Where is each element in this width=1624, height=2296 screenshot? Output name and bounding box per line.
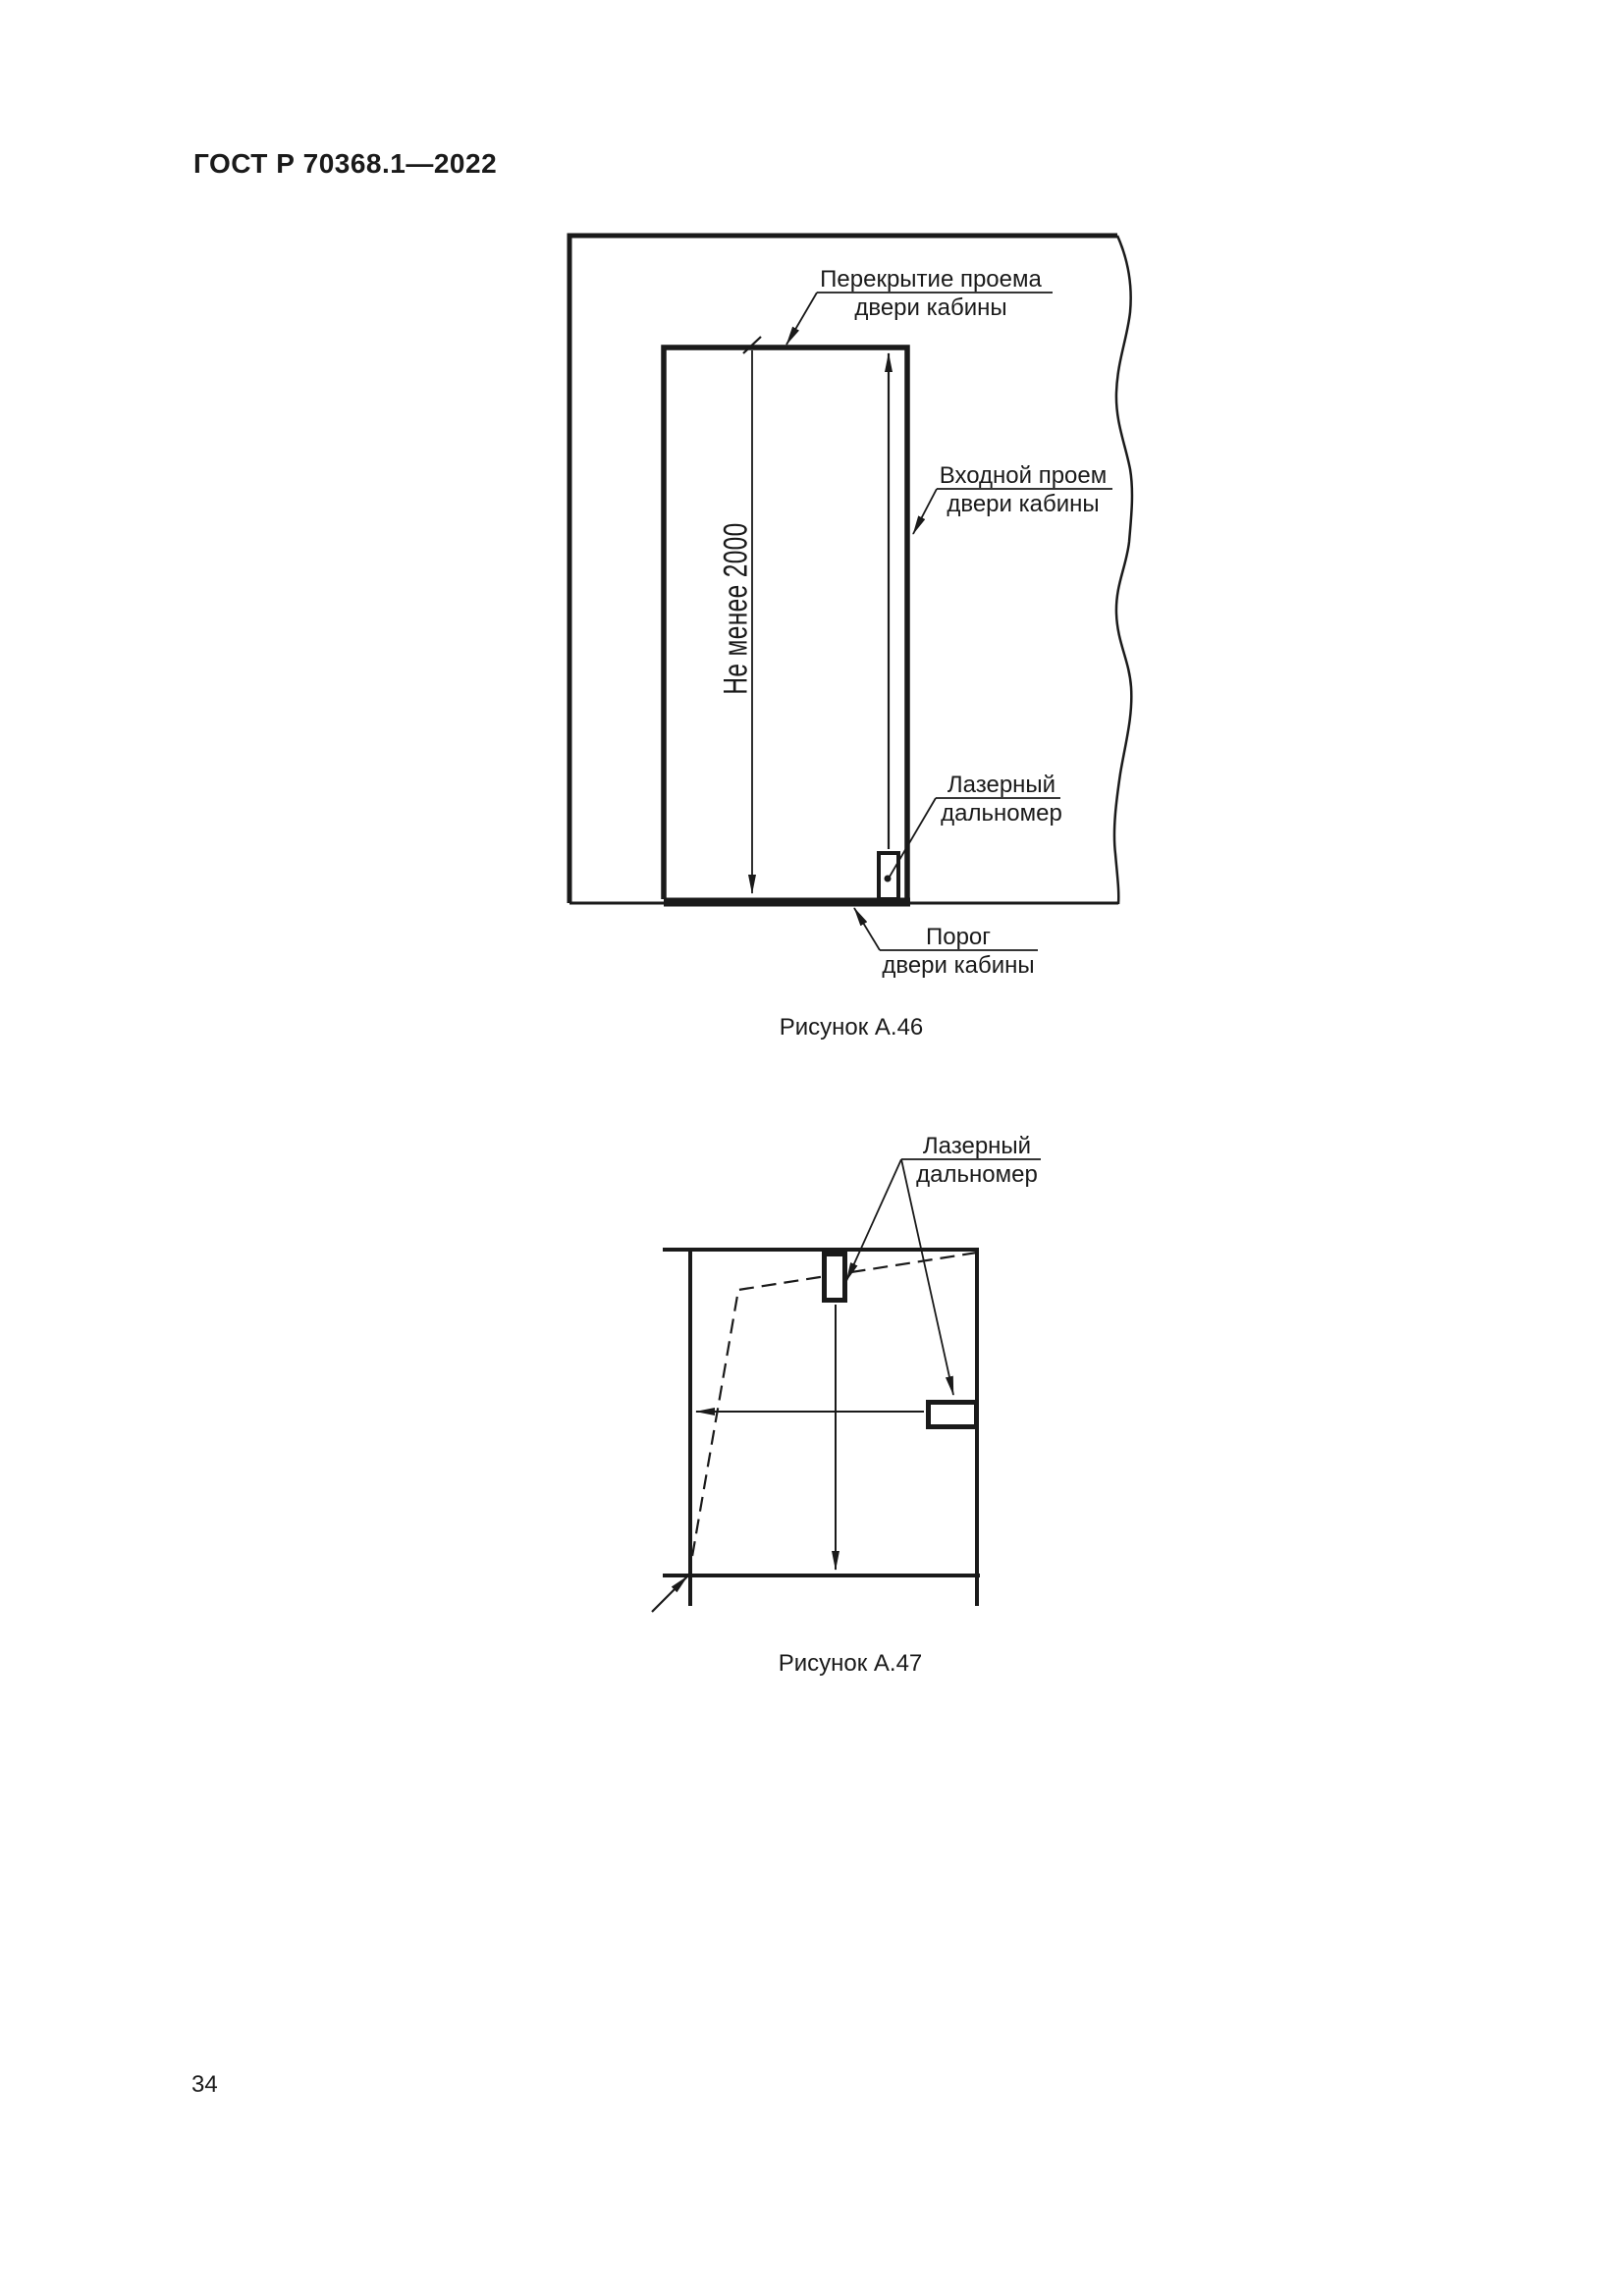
label-lintel: Перекрытие проема двери кабины [820, 265, 1042, 322]
laser-leader-line-a46 [890, 798, 936, 877]
laser-leader-line-right [901, 1159, 953, 1395]
figure-a47-caption: Рисунок А.47 [779, 1650, 923, 1678]
label-entrance-opening: Входной проем двери кабины [940, 461, 1108, 518]
document-code: ГОСТ Р 70368.1—2022 [193, 148, 497, 180]
label-threshold-line1: Порог [882, 923, 1034, 951]
corner-pointer-arrow [652, 1576, 687, 1612]
label-entrance-line1: Входной проем [940, 461, 1108, 490]
page-number: 34 [191, 2071, 218, 2099]
figures-lineart [0, 0, 1624, 2296]
label-laser-a46-line2: дальномер [941, 799, 1062, 828]
label-laser-a47: Лазерный дальномер [916, 1132, 1038, 1189]
threshold-leader-line [854, 908, 880, 950]
figure-a47 [652, 1159, 1041, 1612]
label-lintel-line1: Перекрытие проема [820, 265, 1042, 294]
label-laser-a47-line1: Лазерный [916, 1132, 1038, 1160]
label-laser-a47-line2: дальномер [916, 1160, 1038, 1189]
laser-leader-dot [885, 876, 892, 882]
label-threshold: Порог двери кабины [882, 923, 1034, 980]
entrance-leader-line [913, 489, 937, 534]
laser-rangefinder-top-a47 [825, 1255, 845, 1301]
figure-a46 [569, 236, 1132, 950]
figure-a46-caption: Рисунок А.46 [780, 1014, 924, 1041]
laser-rangefinder-right-a47 [929, 1403, 977, 1427]
label-laser-a46: Лазерный дальномер [941, 771, 1062, 828]
label-laser-a46-line1: Лазерный [941, 771, 1062, 799]
door-opening-outline [664, 347, 907, 899]
document-page: ГОСТ Р 70368.1—2022 Перекрытие проема дв… [0, 0, 1624, 2296]
torn-edge-wavy-line [1114, 236, 1132, 904]
laser-leader-line-top [846, 1159, 901, 1281]
label-entrance-line2: двери кабины [940, 490, 1108, 518]
label-threshold-line2: двери кабины [882, 951, 1034, 980]
label-lintel-line2: двери кабины [820, 294, 1042, 322]
lintel-leader-line [786, 293, 817, 345]
dimension-label-vertical: Не менее 2000 [718, 522, 756, 694]
